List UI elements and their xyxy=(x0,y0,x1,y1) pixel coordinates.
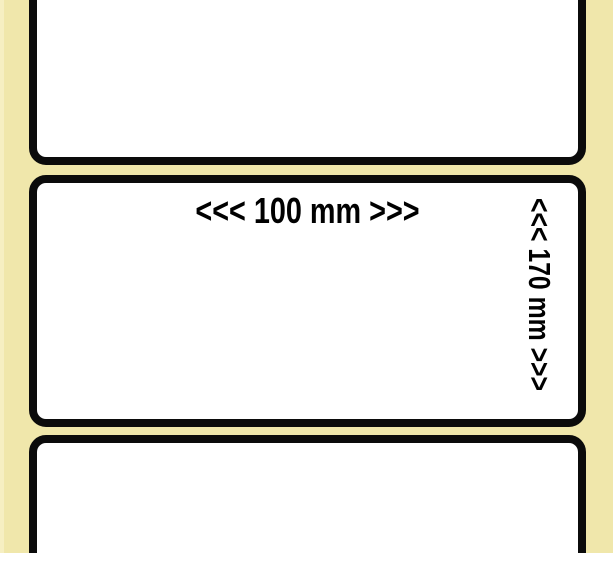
label-roll-image: <<< 100 mm >>> <<< 170 mm >>> xyxy=(0,0,613,562)
height-dimension-container: <<< 170 mm >>> xyxy=(516,183,564,405)
height-dimension-text: <<< 170 mm >>> xyxy=(525,197,556,390)
width-dimension-text: <<< 100 mm >>> xyxy=(91,193,524,229)
label-bottom-partial xyxy=(29,435,586,553)
liner-backing: <<< 100 mm >>> <<< 170 mm >>> xyxy=(0,0,613,553)
label-middle: <<< 100 mm >>> <<< 170 mm >>> xyxy=(29,175,586,427)
label-top-partial xyxy=(29,0,586,165)
